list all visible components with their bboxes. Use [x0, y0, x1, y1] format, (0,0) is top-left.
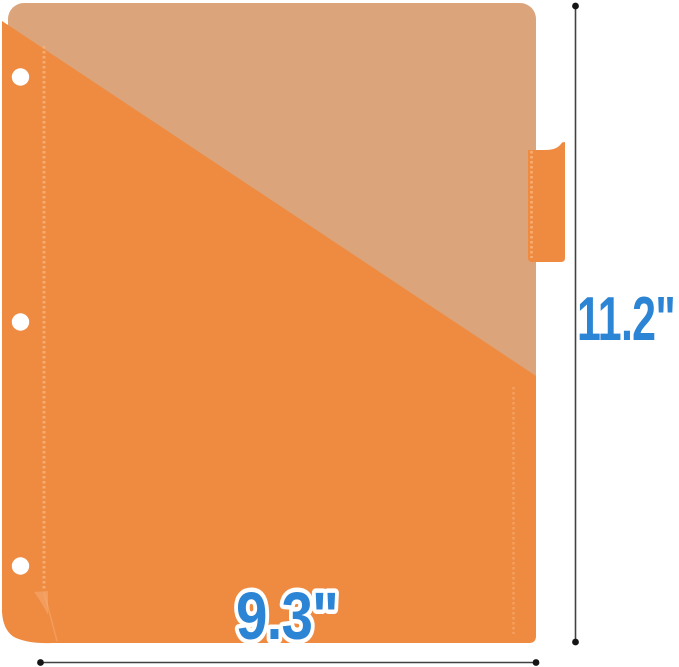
width-dimension-dot-right — [533, 659, 540, 666]
binder-hole-bottom — [12, 557, 29, 574]
index-tab — [528, 142, 565, 262]
width-dimension-label: 9.3" — [236, 579, 338, 654]
height-dimension-dot-bottom — [572, 639, 579, 646]
height-dimension-label: 11.2" — [577, 285, 675, 354]
binder-hole-top — [12, 68, 29, 85]
product-dimension-figure: 11.2" 9.3" — [0, 0, 679, 667]
height-dimension-dot-top — [572, 3, 579, 10]
binder-hole-middle — [12, 313, 29, 330]
width-dimension-dot-left — [37, 659, 44, 666]
divider-illustration: 11.2" 9.3" — [0, 0, 679, 667]
